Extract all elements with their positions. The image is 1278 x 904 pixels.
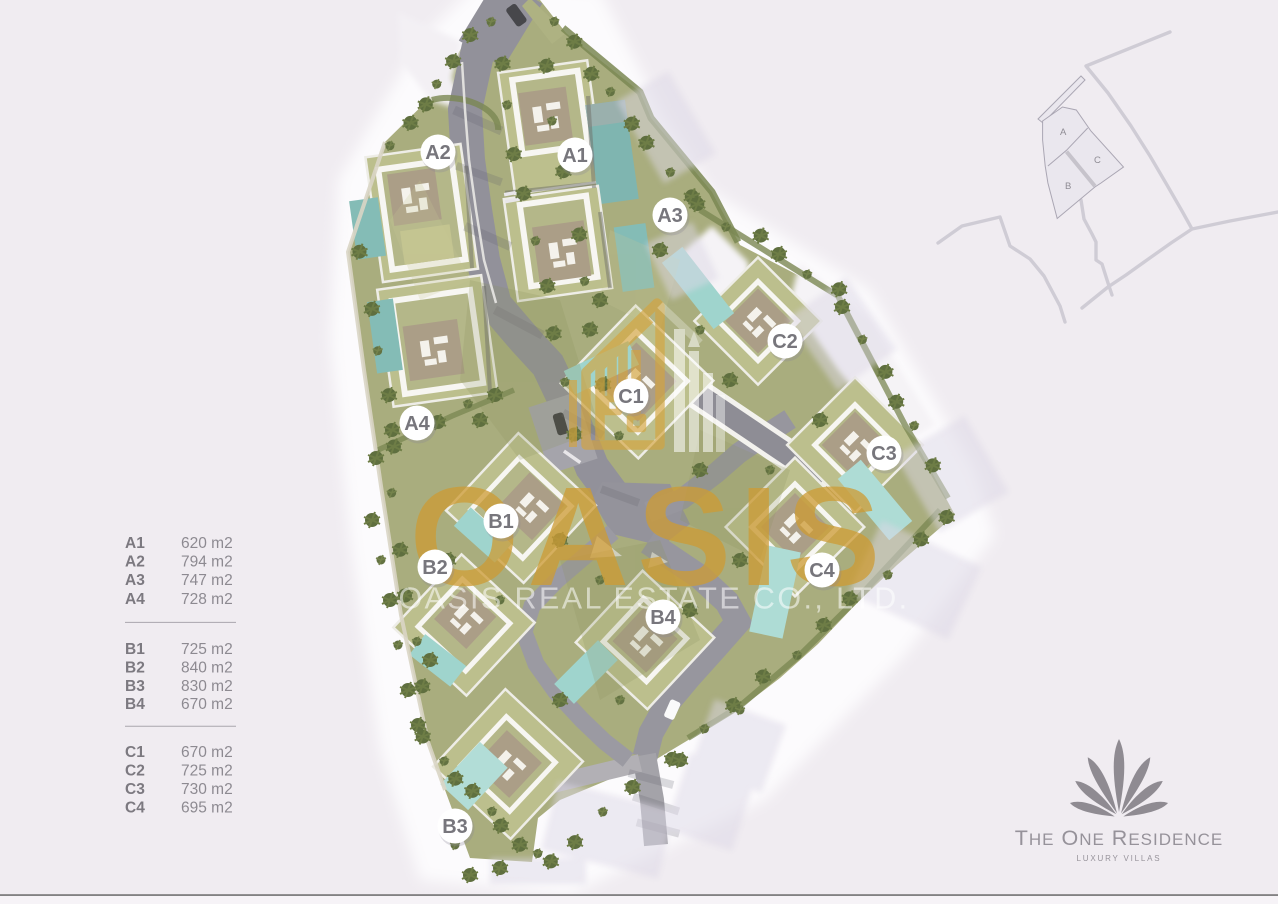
- svg-text:C4: C4: [125, 800, 145, 817]
- svg-text:C2: C2: [125, 763, 145, 780]
- svg-text:B3: B3: [125, 678, 145, 695]
- svg-text:C: C: [1094, 155, 1101, 166]
- svg-text:C1: C1: [125, 744, 145, 761]
- svg-text:728 m2: 728 m2: [181, 591, 233, 608]
- svg-text:LUXURY VILLAS: LUXURY VILLAS: [1077, 854, 1162, 863]
- svg-text:B2: B2: [125, 660, 145, 677]
- svg-text:C4: C4: [809, 560, 835, 582]
- svg-text:THE ONE RESIDENCE: THE ONE RESIDENCE: [1015, 826, 1224, 850]
- svg-text:620 m2: 620 m2: [181, 535, 233, 552]
- svg-text:C1: C1: [618, 386, 644, 408]
- svg-text:C3: C3: [871, 443, 897, 465]
- svg-text:A2: A2: [125, 554, 145, 571]
- svg-text:840 m2: 840 m2: [181, 660, 233, 677]
- svg-text:B: B: [1065, 181, 1071, 192]
- svg-text:830 m2: 830 m2: [181, 678, 233, 695]
- svg-text:747 m2: 747 m2: [181, 572, 233, 589]
- svg-text:670 m2: 670 m2: [181, 696, 233, 713]
- svg-text:725 m2: 725 m2: [181, 763, 233, 780]
- svg-text:C3: C3: [125, 781, 145, 798]
- svg-text:A3: A3: [125, 572, 145, 589]
- svg-text:730 m2: 730 m2: [181, 781, 233, 798]
- svg-text:A: A: [1060, 127, 1067, 138]
- svg-text:B1: B1: [488, 511, 514, 533]
- svg-text:A2: A2: [425, 142, 451, 164]
- svg-text:A1: A1: [125, 535, 145, 552]
- svg-text:B4: B4: [650, 607, 676, 629]
- svg-text:B4: B4: [125, 696, 145, 713]
- svg-text:A1: A1: [562, 145, 588, 167]
- svg-text:C2: C2: [772, 331, 798, 353]
- svg-text:695 m2: 695 m2: [181, 800, 233, 817]
- svg-text:B1: B1: [125, 641, 145, 658]
- svg-text:B3: B3: [442, 816, 468, 838]
- svg-text:A4: A4: [404, 413, 430, 435]
- svg-text:670 m2: 670 m2: [181, 744, 233, 761]
- svg-text:794 m2: 794 m2: [181, 554, 233, 571]
- svg-text:B2: B2: [422, 557, 448, 579]
- svg-text:A3: A3: [657, 205, 683, 227]
- svg-text:725 m2: 725 m2: [181, 641, 233, 658]
- svg-text:A4: A4: [125, 591, 145, 608]
